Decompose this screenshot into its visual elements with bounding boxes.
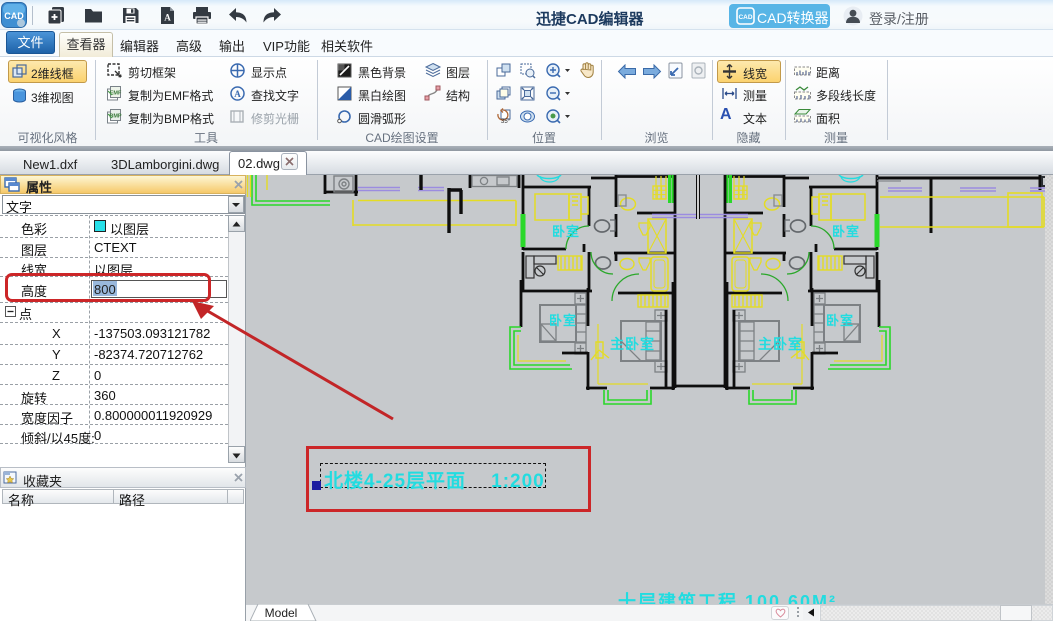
svg-text:A: A xyxy=(164,13,171,23)
svg-text:卧室: 卧室 xyxy=(549,313,577,328)
svg-text:35°: 35° xyxy=(501,119,511,125)
svg-text:CAD: CAD xyxy=(738,14,752,21)
svg-text:卧室: 卧室 xyxy=(832,224,860,239)
svg-text:Model: Model xyxy=(265,606,298,620)
svg-text:主卧室: 主卧室 xyxy=(610,336,655,352)
svg-text:EMF: EMF xyxy=(110,91,122,97)
svg-text:十层建筑工程 100.60M²: 十层建筑工程 100.60M² xyxy=(618,591,837,604)
svg-text:卧室: 卧室 xyxy=(826,313,854,328)
svg-text:卧室: 卧室 xyxy=(552,224,580,239)
svg-text:主卧室: 主卧室 xyxy=(758,336,803,352)
svg-text:A: A xyxy=(234,89,241,99)
